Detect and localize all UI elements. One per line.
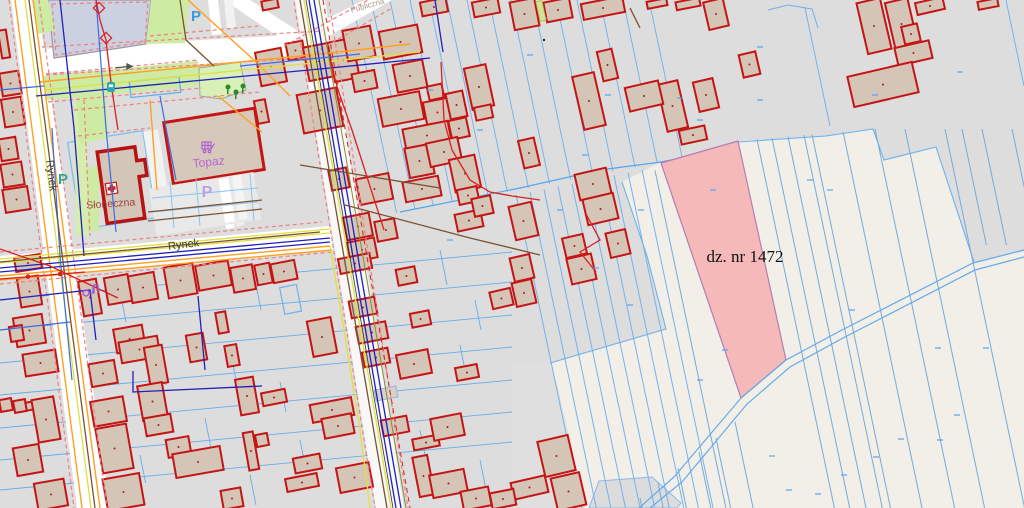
svg-text:P: P xyxy=(58,171,68,188)
svg-text:P: P xyxy=(191,8,201,25)
svg-text:P: P xyxy=(202,184,213,201)
svg-text:dz. nr 1472: dz. nr 1472 xyxy=(707,247,784,266)
